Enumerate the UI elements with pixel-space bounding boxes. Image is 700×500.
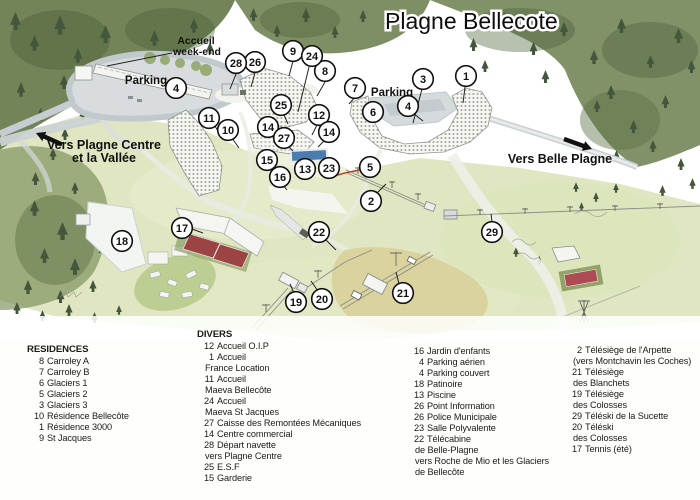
legend-item: 29Téléski de la Sucette — [565, 411, 691, 422]
map-marker-24: 24 — [302, 46, 323, 67]
map-marker-25: 25 — [271, 95, 292, 116]
svg-text:13: 13 — [299, 164, 311, 176]
legend-divers: DIVERS 12Accueil O.I.P1AccueilFrance Loc… — [197, 329, 361, 484]
legend-item: 20Téléski — [565, 422, 691, 433]
page-title: Plagne Bellecote — [385, 8, 558, 34]
map-marker-20: 20 — [312, 289, 333, 310]
svg-text:8: 8 — [322, 66, 328, 78]
legend-item: Maeva St Jacques — [197, 407, 361, 418]
svg-text:15: 15 — [261, 155, 273, 167]
legend-item: 17Tennis (été) — [565, 444, 691, 455]
svg-text:7: 7 — [352, 83, 358, 95]
legend-item: 28Départ navette — [197, 440, 361, 451]
legend-residences-list: 8Carroley A7Carroley B6Glaciers 15Glacie… — [27, 356, 129, 444]
legend-item: 4Parking couvert — [407, 368, 549, 379]
legend-item: des Colosses — [565, 400, 691, 411]
legend-item: 19Télésiège — [565, 389, 691, 400]
legend-item: 11Accueil — [197, 374, 361, 385]
svg-text:25: 25 — [275, 100, 287, 112]
legend-equipments-list: 16Jardin d'enfants4Parking aérien4Parkin… — [407, 346, 549, 478]
legend-lifts: 2Télésiège de l'Arpette(vers Montchavin … — [565, 345, 691, 455]
map-fade — [0, 316, 700, 340]
legend-header-residences: RESIDENCES — [27, 344, 129, 356]
svg-text:3: 3 — [420, 74, 426, 86]
label-accueil-weekend-2: week-end — [172, 46, 221, 58]
legend-item: 22Télécabine — [407, 434, 549, 445]
lift-station-29 — [444, 210, 457, 219]
legend-item: 24Accueil — [197, 396, 361, 407]
map-marker-6: 6 — [363, 102, 384, 123]
legend-item: 26Point Information — [407, 401, 549, 412]
legend-item: 6Glaciers 1 — [27, 378, 129, 389]
svg-text:22: 22 — [313, 227, 325, 239]
legend-item: 23Salle Polyvalente — [407, 423, 549, 434]
legend-item: 15Garderie — [197, 473, 361, 484]
svg-text:14: 14 — [323, 127, 336, 139]
label-vers-plagne-centre-1: Vers Plagne Centre — [47, 138, 161, 152]
map-marker-4: 4 — [166, 78, 187, 99]
svg-text:1: 1 — [463, 71, 469, 83]
map-marker-21: 21 — [393, 283, 414, 304]
map-marker-14: 14 — [319, 122, 340, 143]
legend-item: des Blanchets — [565, 378, 691, 389]
accueil-weekend-building — [75, 66, 92, 80]
svg-text:4: 4 — [173, 83, 180, 95]
legend-item: 12Accueil O.I.P — [197, 341, 361, 352]
svg-text:4: 4 — [405, 101, 412, 113]
svg-text:16: 16 — [274, 172, 286, 184]
map-marker-3: 3 — [413, 69, 434, 90]
map-marker-18: 18 — [112, 231, 133, 252]
legend-item: 8Carroley A — [27, 356, 129, 367]
label-vers-plagne-centre-2: et la Vallée — [72, 151, 136, 165]
legend-item: 14Centre commercial — [197, 429, 361, 440]
legend-item: Maeva Bellecôte — [197, 385, 361, 396]
svg-text:11: 11 — [203, 113, 215, 125]
svg-text:14: 14 — [262, 122, 275, 134]
legend-item: 10Résidence Bellecôte — [27, 411, 129, 422]
legend-item: 9St Jacques — [27, 433, 129, 444]
map-marker-16: 16 — [270, 167, 291, 188]
legend-item: 3Glaciers 3 — [27, 400, 129, 411]
map-marker-27: 27 — [274, 128, 295, 149]
map-marker-1: 1 — [456, 66, 477, 87]
map-marker-17: 17 — [172, 218, 193, 239]
svg-text:6: 6 — [370, 107, 376, 119]
label-vers-belle-plagne: Vers Belle Plagne — [508, 152, 612, 166]
map-marker-2: 2 — [361, 191, 382, 212]
svg-text:24: 24 — [306, 51, 319, 63]
svg-text:12: 12 — [313, 110, 325, 122]
lift-station-top — [222, 84, 238, 95]
legend-item: 16Jardin d'enfants — [407, 346, 549, 357]
map-marker-26: 26 — [245, 52, 266, 73]
legend-item: des Colosses — [565, 433, 691, 444]
legend-item: 1Résidence 3000 — [27, 422, 129, 433]
svg-text:23: 23 — [323, 163, 335, 175]
legend-residences: RESIDENCES 8Carroley A7Carroley B6Glacie… — [27, 344, 129, 444]
legend-item: 5Glaciers 2 — [27, 389, 129, 400]
map-marker-28: 28 — [226, 53, 247, 74]
svg-text:27: 27 — [278, 133, 290, 145]
svg-text:9: 9 — [290, 46, 296, 58]
legend-item: France Location — [197, 363, 361, 374]
map-page: Plagne Bellecote Accueil week-end Parkin… — [0, 0, 700, 500]
legend-lifts-list: 2Télésiège de l'Arpette(vers Montchavin … — [565, 345, 691, 455]
legend-item: 18Patinoire — [407, 379, 549, 390]
map-marker-9: 9 — [283, 41, 304, 62]
legend-item: 2Télésiège de l'Arpette — [565, 345, 691, 356]
legend-item: 27Caisse des Remontées Mécaniques — [197, 418, 361, 429]
legend-item: 13Piscine — [407, 390, 549, 401]
svg-text:10: 10 — [222, 125, 234, 137]
legend-item: de Belle-Plagne — [407, 445, 549, 456]
map-marker-5: 5 — [360, 157, 381, 178]
legend-divers-list: 12Accueil O.I.P1AccueilFrance Location11… — [197, 341, 361, 484]
map-marker-11: 11 — [199, 108, 220, 129]
svg-text:26: 26 — [249, 57, 261, 69]
svg-text:18: 18 — [116, 236, 128, 248]
svg-text:29: 29 — [486, 227, 498, 239]
legend-item: 7Carroley B — [27, 367, 129, 378]
legend-item: de Bellecôte — [407, 467, 549, 478]
legend-item: 26Police Municipale — [407, 412, 549, 423]
svg-text:17: 17 — [176, 223, 188, 235]
map-marker-4: 4 — [398, 96, 419, 117]
map-marker-7: 7 — [345, 78, 366, 99]
svg-text:2: 2 — [368, 196, 374, 208]
legend-item: vers Roche de Mio et les Glaciers — [407, 456, 549, 467]
map-marker-29: 29 — [482, 222, 503, 243]
map-marker-15: 15 — [257, 150, 278, 171]
svg-text:28: 28 — [230, 58, 242, 70]
legend-item: 21Télésiège — [565, 367, 691, 378]
map-marker-23: 23 — [319, 158, 340, 179]
map-marker-10: 10 — [218, 120, 239, 141]
legend-item: 4Parking aérien — [407, 357, 549, 368]
legend-item: (vers Montchavin les Coches) — [565, 356, 691, 367]
legend-item: 1Accueil — [197, 352, 361, 363]
map-marker-13: 13 — [295, 159, 316, 180]
resort-map: Plagne Bellecote Accueil week-end Parkin… — [0, 0, 700, 340]
map-marker-22: 22 — [309, 222, 330, 243]
map-marker-19: 19 — [286, 292, 307, 313]
legend-item: 25E.S.F — [197, 462, 361, 473]
svg-text:21: 21 — [397, 288, 409, 300]
svg-text:19: 19 — [290, 297, 302, 309]
legend-equipments: 16Jardin d'enfants4Parking aérien4Parkin… — [407, 346, 549, 478]
svg-text:20: 20 — [316, 294, 328, 306]
legend-item: vers Plagne Centre — [197, 451, 361, 462]
svg-text:5: 5 — [367, 162, 373, 174]
label-parking-left: Parking — [125, 75, 167, 87]
